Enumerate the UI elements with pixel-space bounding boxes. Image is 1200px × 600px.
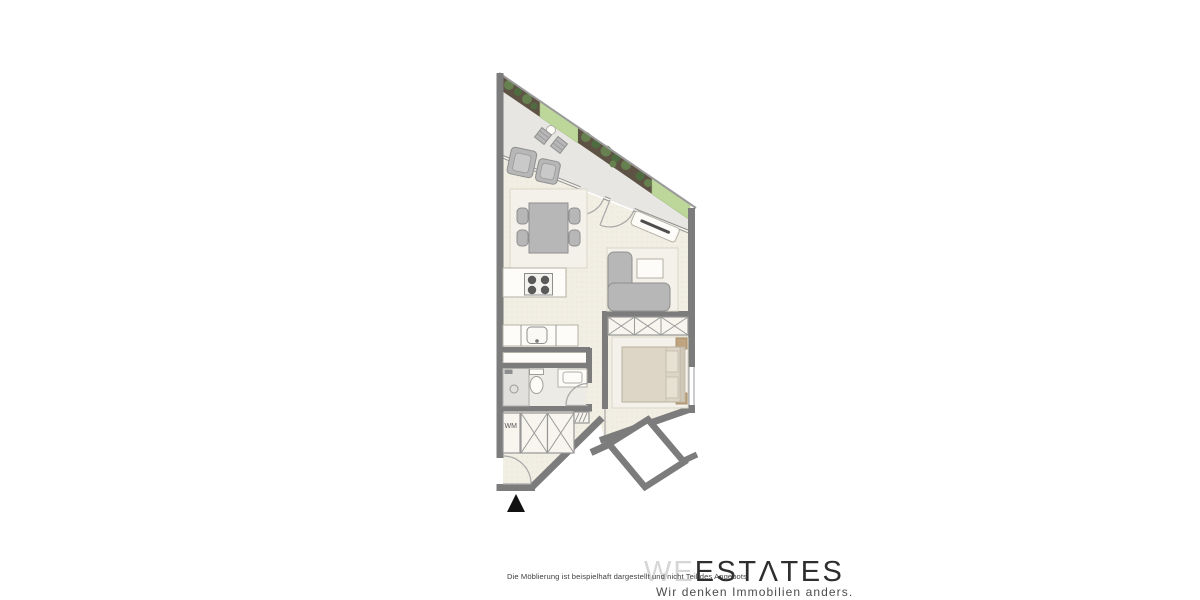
coffee-table (637, 259, 663, 278)
washing-machine-label: WM (505, 423, 518, 430)
entrance-marker-icon (507, 494, 525, 512)
dining-chair (517, 208, 528, 224)
cooktop (525, 274, 553, 296)
living-area (607, 248, 678, 311)
double-bed (622, 347, 685, 402)
bedroom-wardrobe (608, 317, 688, 335)
coat-rack (574, 412, 589, 423)
furnishing-disclaimer: Die Möblierung ist beispielhaft dargeste… (507, 572, 749, 581)
dining-chair (569, 230, 580, 246)
shower (503, 369, 529, 407)
bedroom (608, 317, 688, 408)
wardrobe-closet (521, 413, 574, 453)
washing-machine (503, 413, 520, 453)
dining-chair (569, 208, 580, 224)
floor-plan: WM (0, 0, 1200, 600)
dining-chair (517, 230, 528, 246)
sofa-seat (608, 283, 670, 311)
page: WM Die Möblierung (0, 0, 1200, 600)
shaft-extension (683, 455, 697, 462)
brand-tagline: Wir denken Immobilien anders. (656, 585, 853, 599)
kitchen-sink (527, 327, 547, 344)
bedroom-window (688, 367, 696, 405)
dining-table (529, 203, 568, 253)
bathroom (503, 368, 588, 406)
installation-shaft (503, 353, 587, 364)
toilet (530, 369, 544, 394)
dining-area (510, 189, 587, 268)
